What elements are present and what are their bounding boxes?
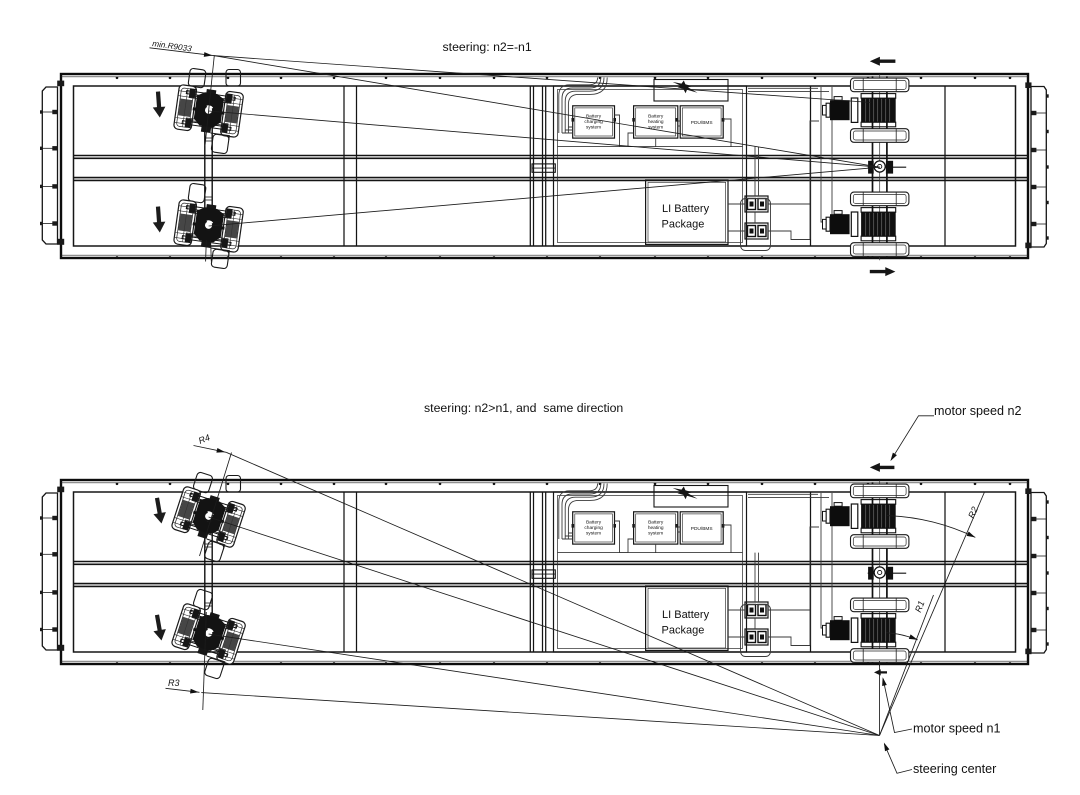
svg-text:R1: R1 bbox=[913, 599, 926, 613]
svg-text:steering: n2=-n1: steering: n2=-n1 bbox=[443, 40, 532, 54]
svg-text:steering: n2>n1, and same dir: steering: n2>n1, and same direction bbox=[424, 401, 623, 415]
svg-text:R3: R3 bbox=[168, 678, 180, 688]
svg-text:motor speed n1: motor speed n1 bbox=[913, 722, 1001, 736]
svg-text:R4: R4 bbox=[197, 432, 211, 446]
svg-text:motor speed n2: motor speed n2 bbox=[934, 404, 1022, 418]
svg-text:steering center: steering center bbox=[913, 762, 996, 776]
svg-text:min.R9033: min.R9033 bbox=[152, 39, 193, 53]
